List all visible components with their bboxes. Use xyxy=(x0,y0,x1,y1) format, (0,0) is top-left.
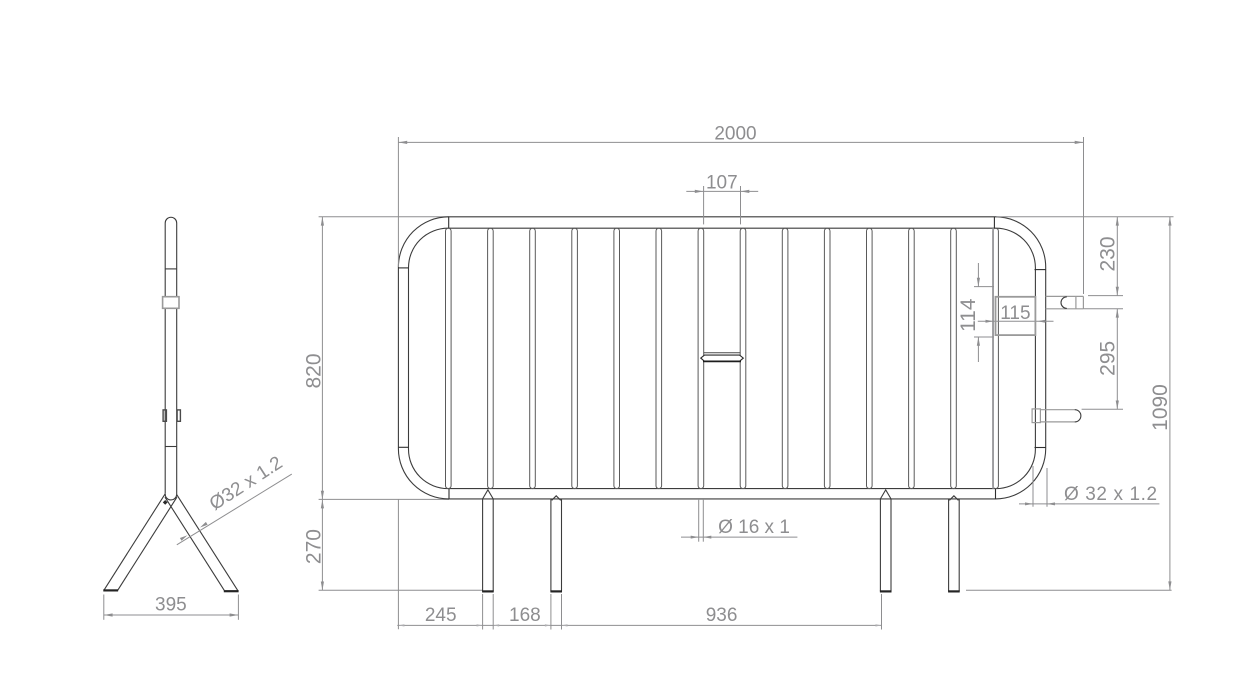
svg-text:Ø 16 x 1: Ø 16 x 1 xyxy=(718,517,790,538)
svg-text:230: 230 xyxy=(1096,236,1119,271)
svg-text:1090: 1090 xyxy=(1149,384,1172,431)
svg-text:114: 114 xyxy=(957,298,980,332)
svg-text:245: 245 xyxy=(425,605,457,626)
svg-text:295: 295 xyxy=(1096,341,1119,376)
svg-text:820: 820 xyxy=(302,353,325,388)
svg-text:2000: 2000 xyxy=(714,123,756,144)
svg-text:936: 936 xyxy=(706,605,738,626)
svg-text:Ø 32 x 1.2: Ø 32 x 1.2 xyxy=(1064,484,1158,505)
svg-text:395: 395 xyxy=(155,595,187,616)
svg-text:168: 168 xyxy=(509,605,541,626)
svg-text:115: 115 xyxy=(1000,303,1030,324)
svg-text:107: 107 xyxy=(706,172,738,193)
svg-text:270: 270 xyxy=(302,529,325,564)
